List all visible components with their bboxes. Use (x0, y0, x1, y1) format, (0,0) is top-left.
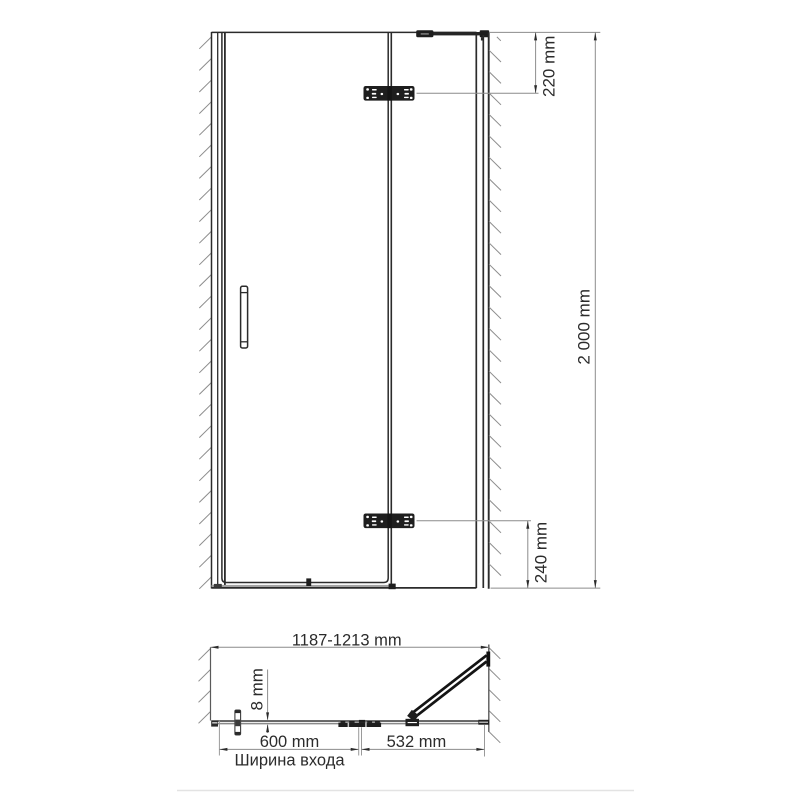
svg-text:240 mm: 240 mm (532, 522, 551, 583)
svg-text:220 mm: 220 mm (539, 36, 558, 97)
svg-text:1187-1213 mm: 1187-1213 mm (292, 632, 402, 650)
svg-text:600 mm: 600 mm (260, 733, 320, 751)
svg-text:8 mm: 8 mm (248, 668, 267, 711)
svg-text:532 mm: 532 mm (387, 733, 447, 751)
svg-text:Ширина входа: Ширина входа (235, 751, 346, 769)
svg-text:2 000 mm: 2 000 mm (575, 289, 594, 365)
